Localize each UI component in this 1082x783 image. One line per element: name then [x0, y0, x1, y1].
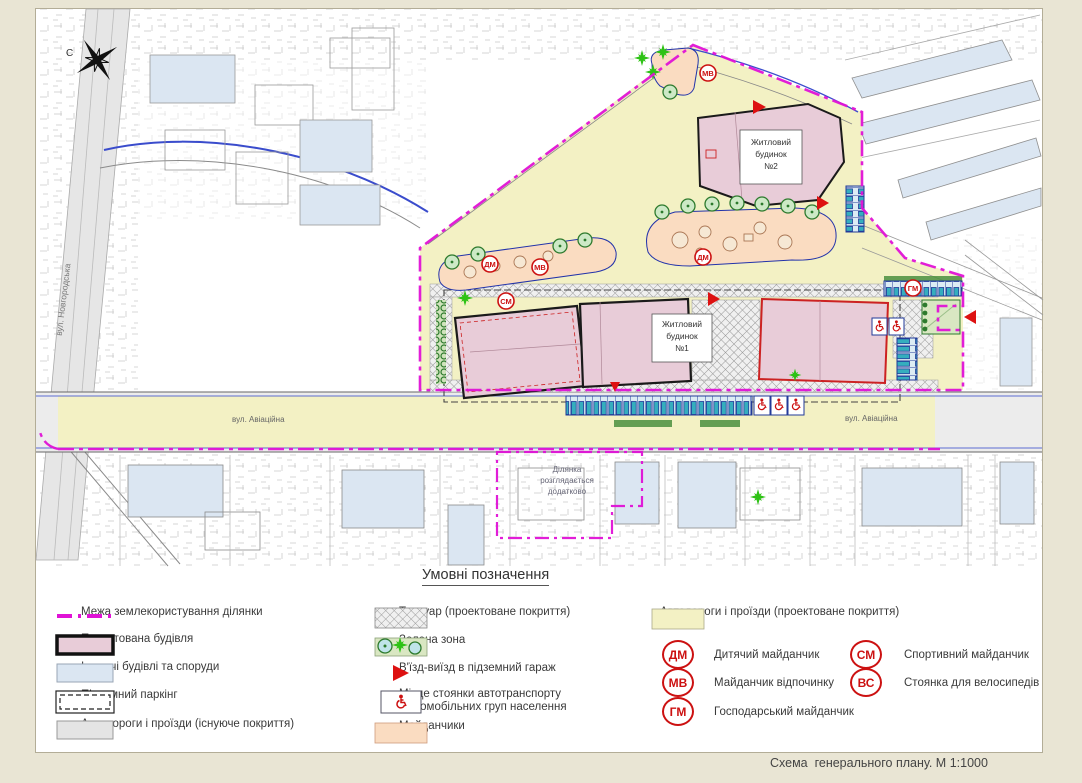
- svg-text:Житловий: Житловий: [662, 319, 702, 329]
- garage-entry-icon: [373, 662, 429, 684]
- svg-text:МВ: МВ: [702, 69, 714, 78]
- legend-item-garage-entry: В'їзд-виїзд в підземний гараж: [373, 662, 556, 674]
- svg-text:№2: №2: [764, 161, 778, 171]
- svg-text:СМ: СМ: [500, 297, 512, 306]
- legend-item-new-building: Проектована будівля: [54, 633, 193, 645]
- disabled-parking-icon: [373, 688, 429, 716]
- road-proposed-swatch-icon: [650, 606, 706, 632]
- green-zone-swatch-icon: [373, 634, 429, 660]
- legend-item-boundary: Межа землекористування ділянки: [54, 606, 263, 618]
- svg-text:ДМ: ДМ: [484, 260, 496, 269]
- legend-title: Умовні позначення: [422, 567, 549, 586]
- street-avia-label-east: вул. Авіаційна: [845, 414, 898, 423]
- drawing-caption: Схема генерального плану. М 1:1000: [770, 756, 988, 770]
- general-plan-sheet: вул. Новгородська: [0, 0, 1082, 783]
- boundary-swatch-icon: [54, 606, 116, 626]
- building-2-label: Житловий будинок №2: [740, 130, 802, 184]
- dm-code-circle: ДМ: [662, 640, 694, 669]
- sidewalk-swatch-icon: [373, 606, 429, 630]
- road-existing-swatch-icon: [54, 718, 116, 742]
- legend-item-existing-building: Існуючі будівлі та споруди: [54, 661, 219, 673]
- svg-text:Ділянка: Ділянка: [553, 465, 582, 474]
- svg-text:розглядається: розглядається: [540, 476, 594, 485]
- gm-code-circle: ГМ: [662, 697, 694, 726]
- sm-code-circle: СМ: [850, 640, 882, 669]
- legend-item-gm: ГМ Господарський майданчик: [662, 697, 854, 726]
- svg-text:будинок: будинок: [666, 331, 698, 341]
- legend-item-green-zone: Зелена зона: [373, 634, 465, 646]
- legend-item-disabled-parking: Місце стоянки автотранспортумаломобільни…: [373, 688, 567, 714]
- svg-text:додатково: додатково: [548, 487, 587, 496]
- legend-item-mv: МВ Майданчик відпочинку: [662, 668, 834, 697]
- legend-item-road-existing: Автодороги і проїзди (існуюче покриття): [54, 718, 294, 730]
- svg-text:Житловий: Житловий: [751, 137, 791, 147]
- svg-text:№1: №1: [675, 343, 689, 353]
- legend-item-underground-parking: Підземний паркінг: [54, 689, 178, 701]
- legend-item-dm: ДМ Дитячий майданчик: [662, 640, 819, 669]
- playgrounds-swatch-icon: [373, 720, 429, 746]
- legend-item-vs: ВС Стоянка для велосипедів: [850, 668, 1039, 697]
- building-1-label: Житловий будинок №1: [652, 314, 712, 362]
- underground-parking-swatch-icon: [54, 689, 116, 715]
- legend-item-sm: СМ Спортивний майданчик: [850, 640, 1029, 669]
- svg-text:ДМ: ДМ: [697, 253, 709, 262]
- street-avia-label-west: вул. Авіаційна: [232, 415, 285, 424]
- vs-code-circle: ВС: [850, 668, 882, 697]
- legend-item-playgrounds: Майданчики: [373, 720, 465, 732]
- svg-text:МВ: МВ: [534, 263, 546, 272]
- svg-text:ГМ: ГМ: [908, 284, 919, 293]
- existing-building-swatch-icon: [54, 661, 116, 685]
- north-letter: С: [66, 48, 73, 59]
- legend-item-sidewalk: Тротуар (проектоване покриття): [373, 606, 570, 618]
- mv-code-circle: МВ: [662, 668, 694, 697]
- svg-text:будинок: будинок: [755, 149, 787, 159]
- legend-item-road-proposed: Автодороги і проїзди (проектоване покрит…: [650, 606, 899, 618]
- new-building-swatch-icon: [54, 633, 116, 657]
